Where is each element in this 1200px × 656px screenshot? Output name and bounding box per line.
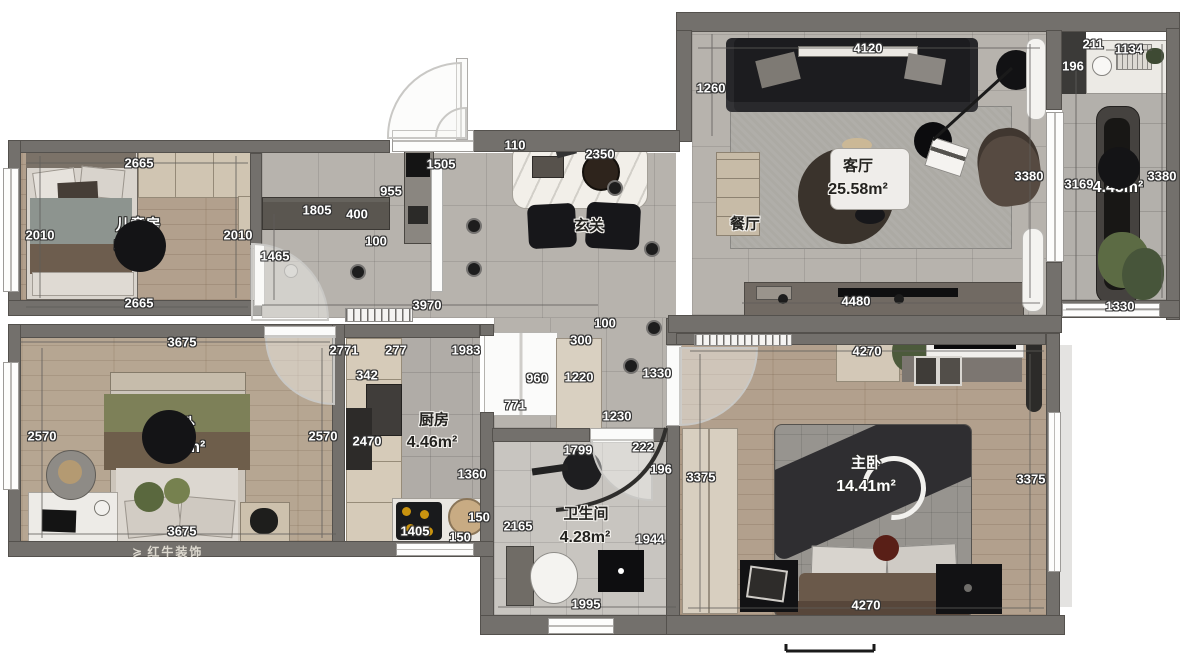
spotlight [350,264,366,280]
hall-cabinet-items [408,206,428,224]
wall-grill [694,334,792,346]
window [1048,412,1061,572]
master-left-closet [682,428,738,614]
entry-chair [585,202,641,251]
curtain [1026,38,1046,120]
laundry-sink [1092,56,1112,76]
burner [420,510,429,519]
window [1062,303,1160,317]
balcony-plant-small [1146,48,1164,64]
second-bedroom-door-leaf [264,326,336,338]
dining-bench [716,152,760,236]
children-blanket-fold [30,244,132,274]
window [396,543,474,556]
entry-door-arc [388,63,461,138]
nightstand-art [746,566,788,603]
second-desk-lamp [94,500,110,516]
wall [8,300,262,316]
second-bed-blanket-fold [104,432,250,470]
second-vase-top [58,460,82,484]
kitchen-dark-cabinet [346,408,372,470]
living-label-card [830,148,910,210]
picture-frame [914,356,938,386]
sofa-back-shelf [798,46,918,57]
window [548,618,614,634]
balcony-plant-leaves [1122,248,1164,300]
balcony-glass-door [1046,112,1064,262]
wall [480,324,494,336]
kitchen-sliding-door [484,332,558,416]
console-knob [778,294,788,304]
wall-grill [345,308,413,322]
window [3,362,19,490]
picture-frame [938,356,962,386]
wall [8,324,480,338]
burner [406,524,415,533]
wall [676,30,692,142]
wall [1166,28,1180,320]
second-side-plant [250,508,278,534]
watermark-bull-icon: ≽ [132,545,142,559]
console-knob [894,294,904,304]
burner [424,527,433,536]
wall [668,315,1062,333]
second-bed-pillow [178,496,235,539]
children-door-leaf [254,244,265,306]
second-desk-laptop [42,509,77,532]
children-wardrobe [138,150,252,198]
wall [1046,262,1062,318]
children-bed-foot [32,272,134,296]
wall [472,130,680,152]
master-door-leaf [666,345,682,426]
floor-plan: 4120211113419612602665110235015053380316… [0,0,1200,656]
wall [652,428,668,442]
wall [676,12,1180,32]
spotlight [466,218,482,234]
curtain [1022,228,1044,312]
master-bed-red-cushion [873,535,899,561]
hall-console-table [262,197,390,230]
second-bed-cushion [134,482,164,512]
hall-white-column [431,166,443,292]
window [3,168,19,292]
spotlight [646,320,662,336]
spotlight [284,264,298,278]
children-blanket [30,198,132,244]
spotlight [466,261,482,277]
hallway-cabinet [556,338,602,432]
balcony-pillar-cabinet [1062,32,1086,94]
hall-coffee-station [406,153,430,177]
wall [332,324,345,556]
bathroom-door-leaf [590,428,654,443]
bath-drain-light [618,568,624,574]
watermark: ≽ 红牛装饰 [132,543,203,560]
master-curtain [1026,336,1042,412]
watermark-text: 红牛装饰 [147,545,203,559]
burner [402,507,411,516]
wall [250,153,262,245]
wall [1046,30,1062,110]
wall [480,412,494,620]
entry-chair [527,203,577,249]
entry-table-frame [532,156,564,178]
second-bed-cushion [164,478,190,504]
second-bed-blanket [104,394,250,436]
entry-door-leaf [456,58,468,140]
wall [666,424,680,635]
spotlight [607,180,623,196]
spotlight [623,358,639,374]
wall [492,428,590,442]
nightstand-knob [964,584,972,592]
exterior-ledge [1060,345,1072,607]
scale-bracket [786,644,874,651]
spotlight [644,241,660,257]
wall [666,615,1065,635]
wall [8,140,390,153]
